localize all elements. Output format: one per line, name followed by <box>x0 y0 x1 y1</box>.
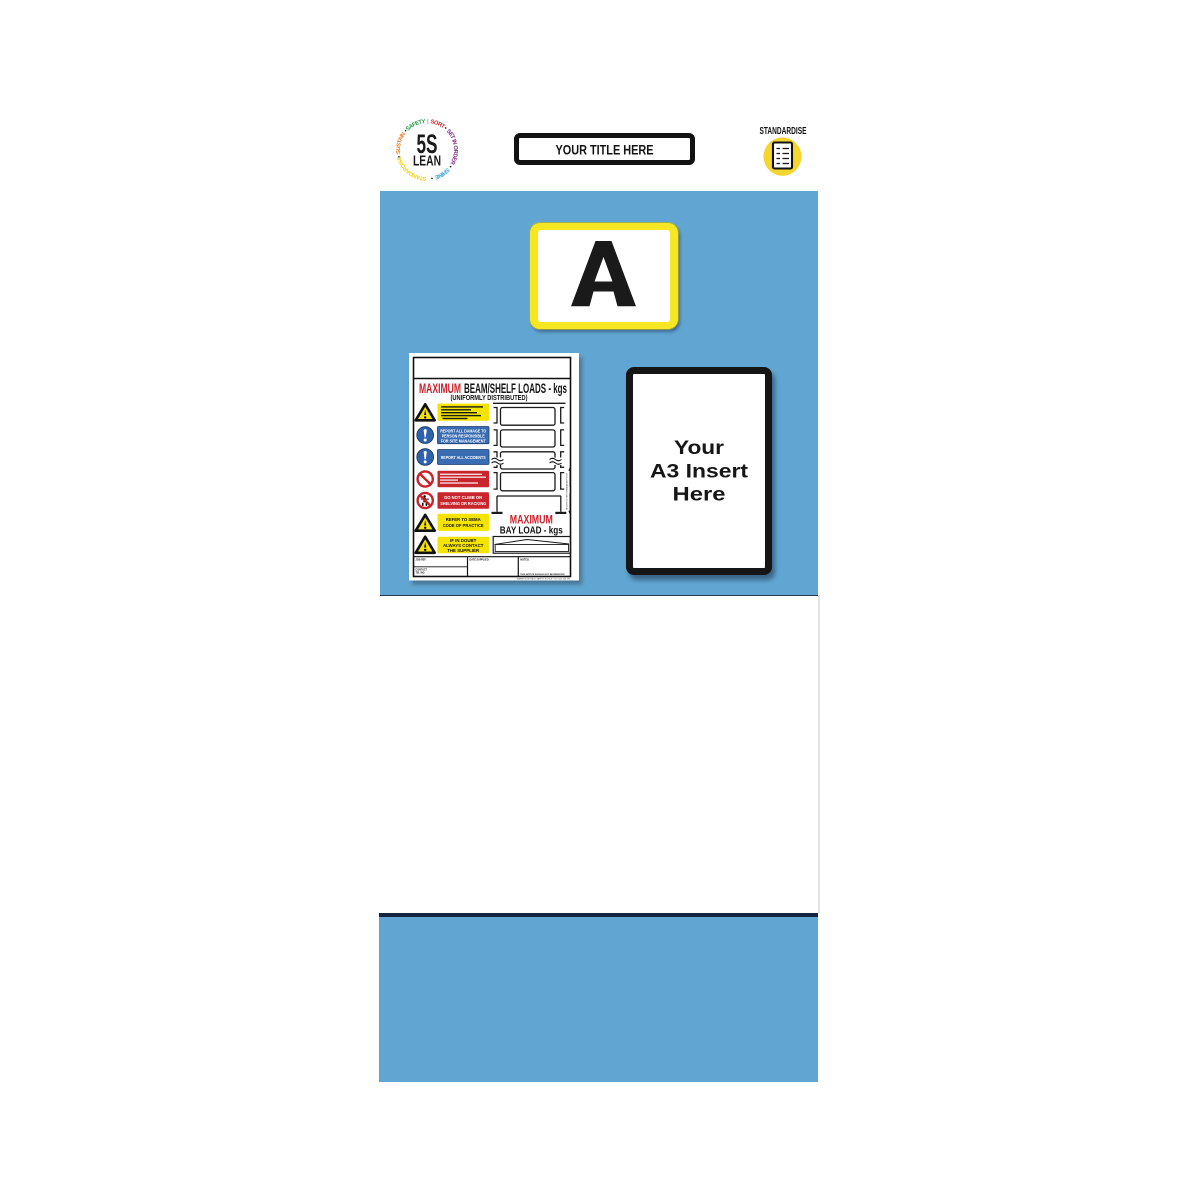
svg-text:NOTES:: NOTES: <box>520 558 529 561</box>
svg-text:SET IN ORDER: SET IN ORDER <box>445 129 458 166</box>
svg-text:BEAM/SHELF LOADS - kgs: BEAM/SHELF LOADS - kgs <box>464 381 567 396</box>
svg-text:REFER TO SEMA: REFER TO SEMA <box>445 517 481 522</box>
svg-text:FOR SITE MANAGEMENT: FOR SITE MANAGEMENT <box>440 438 485 443</box>
svg-text:DATE SUPPLIED:: DATE SUPPLIED: <box>469 558 489 561</box>
svg-text:BAY LOAD - kgs: BAY LOAD - kgs <box>499 525 562 536</box>
svg-text:|: | <box>427 119 429 125</box>
svg-text:TEL NO:: TEL NO: <box>415 571 425 574</box>
svg-text:SUSTAIN: SUSTAIN <box>396 131 407 154</box>
svg-text:(UNIFORMLY DISTRIBUTED): (UNIFORMLY DISTRIBUTED) <box>450 395 527 402</box>
svg-text:WAREHOUSE RACK SAFETY NOTICE •: WAREHOUSE RACK SAFETY NOTICE • Tel: 0123… <box>516 577 570 580</box>
svg-text:•: • <box>430 174 433 180</box>
svg-text:A3 Insert: A3 Insert <box>650 461 749 483</box>
svg-text:LEAN: LEAN <box>413 154 441 170</box>
svg-text:SHELVING OR RACKING: SHELVING OR RACKING <box>440 500 486 505</box>
svg-text:JOB REF:: JOB REF: <box>415 558 426 561</box>
svg-text:THIS NOTICE SHOULD NOT BE REMO: THIS NOTICE SHOULD NOT BE REMOVED <box>520 573 565 575</box>
svg-text:Here: Here <box>673 484 726 506</box>
svg-text:MAXIMUM: MAXIMUM <box>419 381 461 396</box>
svg-text:BEAM PITCH: BEAM PITCH <box>565 472 568 485</box>
svg-text:HEIGHT TO FIRST BEAM: HEIGHT TO FIRST BEAM <box>565 485 568 509</box>
svg-text:REPORT ALL ACCIDENTS: REPORT ALL ACCIDENTS <box>440 454 485 459</box>
svg-text:DO NOT CLIMB ON: DO NOT CLIMB ON <box>444 495 483 500</box>
svg-text:YOUR TITLE HERE: YOUR TITLE HERE <box>556 143 654 158</box>
svg-text:CODE OF PRACTICE: CODE OF PRACTICE <box>442 522 483 527</box>
svg-text:Your: Your <box>674 437 724 459</box>
svg-text:•: • <box>447 164 453 169</box>
svg-text:THE SUPPLIER: THE SUPPLIER <box>447 548 480 553</box>
